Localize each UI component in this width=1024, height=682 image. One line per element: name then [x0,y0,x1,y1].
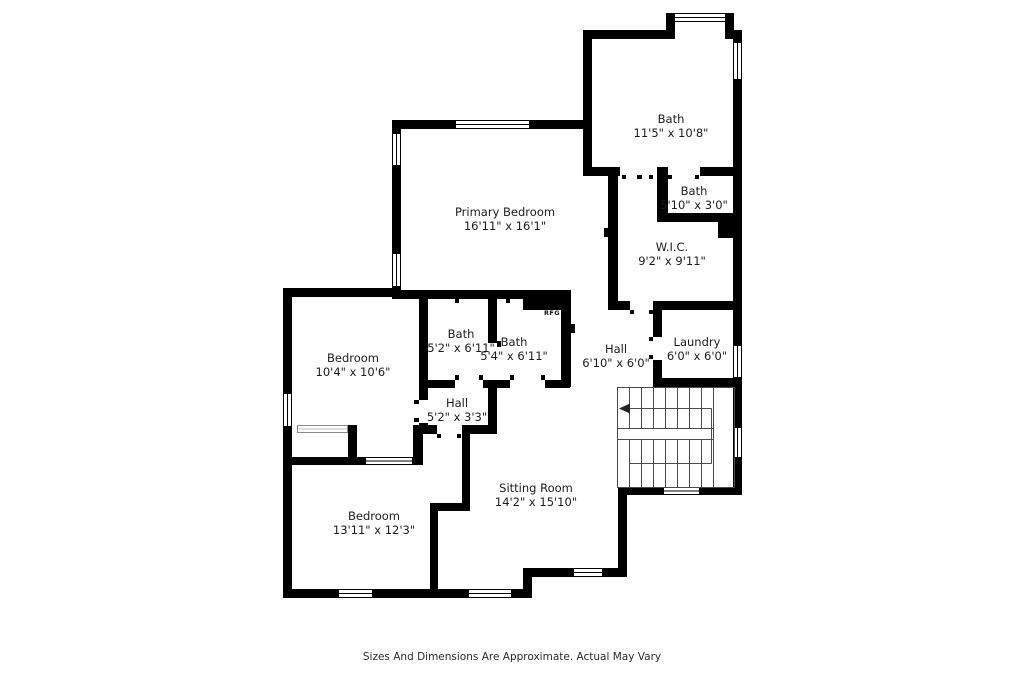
room-label-hall-lower: Hall 5'2" x 3'3" [427,396,487,424]
room-name: Bedroom [333,509,415,523]
floor-plan-page: Bath 11'5" x 10'8" Bath 5'10" x 3'0" W.I… [0,0,1024,682]
room-label-bath-upper: Bath 11'5" x 10'8" [634,112,709,140]
room-dims: 5'10" x 3'0" [660,198,728,212]
room-dims: 5'4" x 6'11" [480,349,548,363]
room-label-primary-bedroom: Primary Bedroom 16'11" x 16'1" [455,205,555,233]
room-name: Primary Bedroom [455,205,555,219]
room-dims: 9'2" x 9'11" [638,254,706,268]
room-label-bath-54: Bath 5'4" x 6'11" [480,335,548,363]
room-label-laundry: Laundry 6'0" x 6'0" [667,335,727,363]
room-dims: 5'2" x 3'3" [427,410,487,424]
room-dims: 16'11" x 16'1" [455,219,555,233]
room-name: Sitting Room [495,481,577,495]
room-dims: 14'2" x 15'10" [495,495,577,509]
room-dims: 13'11" x 12'3" [333,523,415,537]
room-name: Laundry [667,335,727,349]
room-dims: 6'0" x 6'0" [667,349,727,363]
room-name: W.I.C. [638,240,706,254]
rfg-annotation: RFG [544,309,560,317]
room-dims: 6'10" x 6'0" [582,356,650,370]
room-dims: 10'4" x 10'6" [316,365,391,379]
room-label-sitting-room: Sitting Room 14'2" x 15'10" [495,481,577,509]
room-name: Hall [582,342,650,356]
room-label-bedroom-lower: Bedroom 13'11" x 12'3" [333,509,415,537]
room-name: Bath [660,184,728,198]
room-name: Bath [634,112,709,126]
room-name: Bath [480,335,548,349]
room-name: Hall [427,396,487,410]
room-dims: 11'5" x 10'8" [634,126,709,140]
stairs [618,388,735,488]
room-label-hall-upper: Hall 6'10" x 6'0" [582,342,650,370]
room-label-bedroom-upper: Bedroom 10'4" x 10'6" [316,351,391,379]
room-label-bath-small: Bath 5'10" x 3'0" [660,184,728,212]
room-name: Bedroom [316,351,391,365]
footer-disclaimer: Sizes And Dimensions Are Approximate. Ac… [0,651,1024,663]
room-label-wic: W.I.C. 9'2" x 9'11" [638,240,706,268]
